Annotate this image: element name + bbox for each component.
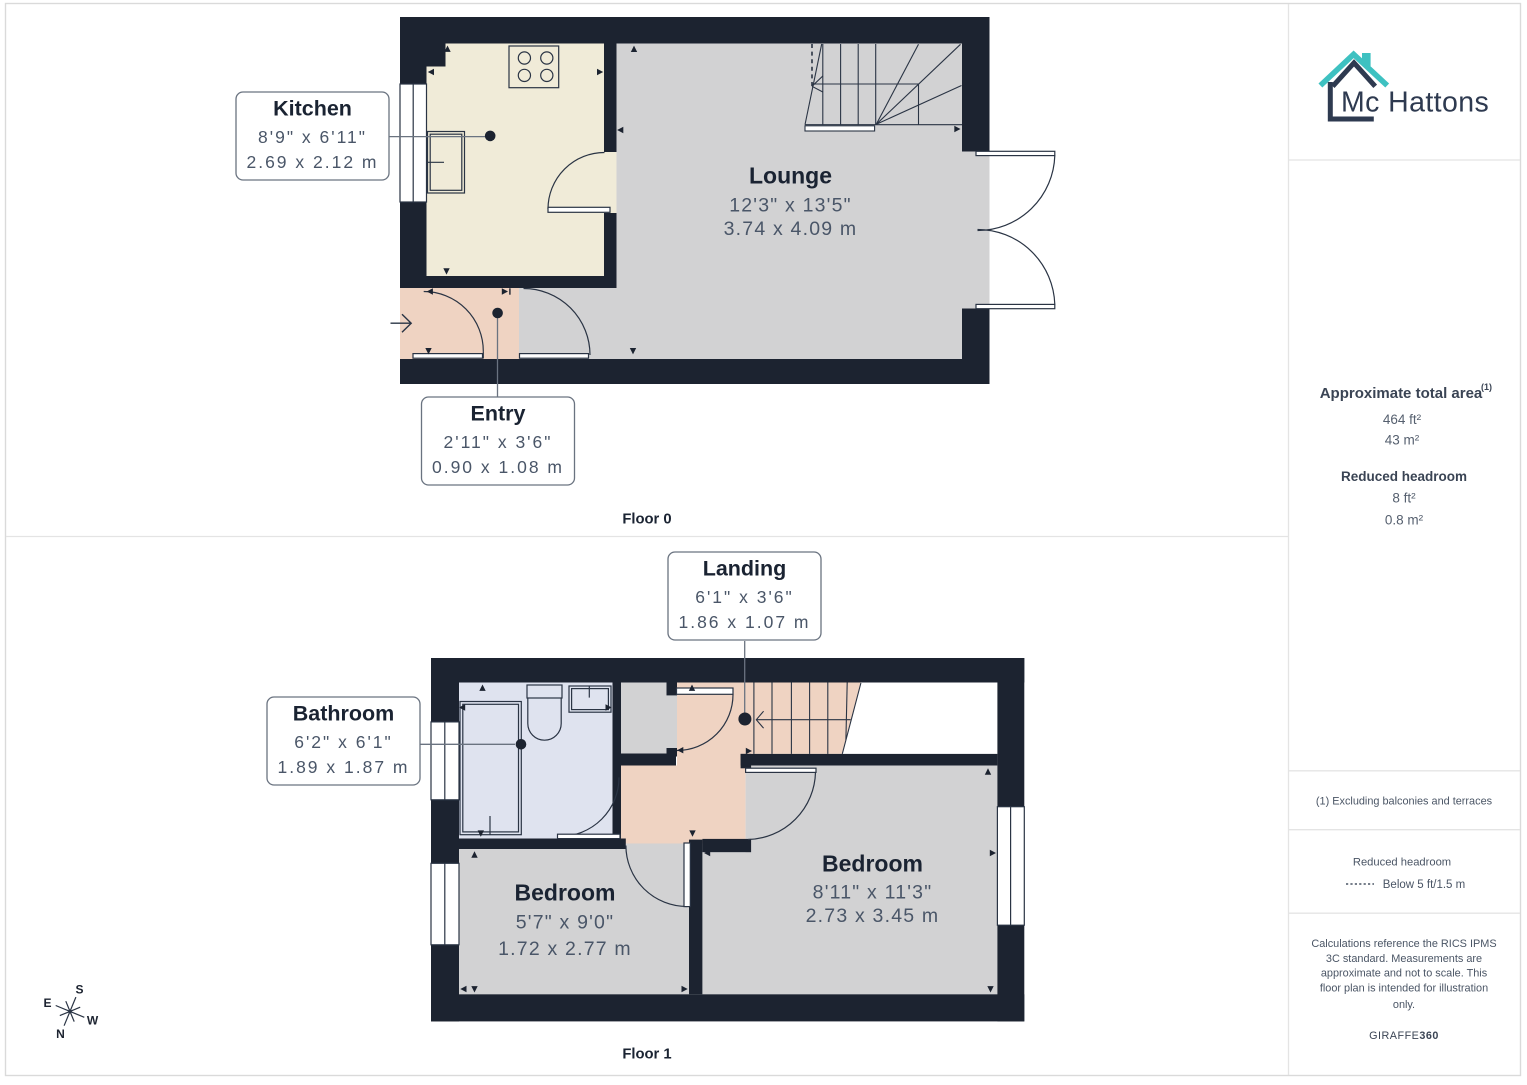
svg-text:Floor 0: Floor 0 [622,512,671,528]
svg-text:Below 5 ft/1.5 m: Below 5 ft/1.5 m [1383,879,1465,891]
svg-text:only.: only. [1393,999,1415,1011]
svg-text:2.73 x 3.45 m: 2.73 x 3.45 m [806,905,940,927]
svg-text:S: S [75,983,83,997]
svg-text:Landing: Landing [703,557,787,581]
svg-text:Bedroom: Bedroom [515,880,616,906]
svg-text:(1) Excluding balconies and te: (1) Excluding balconies and terraces [1316,796,1493,808]
svg-text:2.69 x 2.12 m: 2.69 x 2.12 m [246,152,378,172]
svg-text:3C standard. Measurements are: 3C standard. Measurements are [1326,953,1482,965]
svg-text:1.89 x 1.87 m: 1.89 x 1.87 m [277,757,409,777]
svg-text:12'3" x 13'5": 12'3" x 13'5" [729,195,852,217]
svg-text:Floor 1: Floor 1 [622,1047,671,1063]
svg-text:1.72 x 2.77 m: 1.72 x 2.77 m [498,938,632,960]
svg-text:W: W [87,1014,99,1028]
svg-text:6'1" x 3'6": 6'1" x 3'6" [695,587,794,607]
svg-text:Bedroom: Bedroom [822,851,923,877]
svg-text:2'11" x 3'6": 2'11" x 3'6" [444,432,553,452]
svg-text:E: E [43,996,51,1010]
svg-text:Kitchen: Kitchen [273,97,352,121]
svg-text:5'7" x 9'0": 5'7" x 9'0" [516,912,614,934]
svg-text:floor plan is intended for ill: floor plan is intended for illustration [1320,982,1488,994]
svg-text:(1): (1) [1481,382,1492,392]
svg-text:N: N [56,1027,65,1041]
svg-text:Bathroom: Bathroom [293,702,395,726]
svg-text:464 ft²: 464 ft² [1383,412,1422,427]
svg-text:Reduced headroom: Reduced headroom [1341,469,1467,484]
svg-text:Mc Hattons: Mc Hattons [1341,87,1489,119]
svg-text:8'9" x 6'11": 8'9" x 6'11" [258,127,367,147]
svg-text:Calculations reference the RIC: Calculations reference the RICS IPMS [1311,938,1496,950]
svg-text:Approximate total area: Approximate total area [1320,385,1483,402]
svg-text:8 ft²: 8 ft² [1392,491,1416,506]
svg-text:8'11" x 11'3": 8'11" x 11'3" [813,882,933,904]
svg-text:approximate and not to scale.: approximate and not to scale. This [1321,968,1488,980]
svg-text:1.86 x 1.07 m: 1.86 x 1.07 m [678,612,810,632]
svg-text:GIRAFFE360: GIRAFFE360 [1369,1030,1439,1042]
svg-text:Lounge: Lounge [749,163,832,189]
svg-text:Reduced headroom: Reduced headroom [1353,857,1451,869]
svg-text:6'2" x 6'1": 6'2" x 6'1" [294,732,393,752]
svg-text:0.90 x 1.08 m: 0.90 x 1.08 m [432,457,564,477]
svg-text:0.8 m²: 0.8 m² [1385,513,1424,528]
svg-text:3.74 x 4.09 m: 3.74 x 4.09 m [724,218,858,240]
svg-text:43 m²: 43 m² [1385,433,1420,448]
svg-text:Entry: Entry [471,402,526,426]
